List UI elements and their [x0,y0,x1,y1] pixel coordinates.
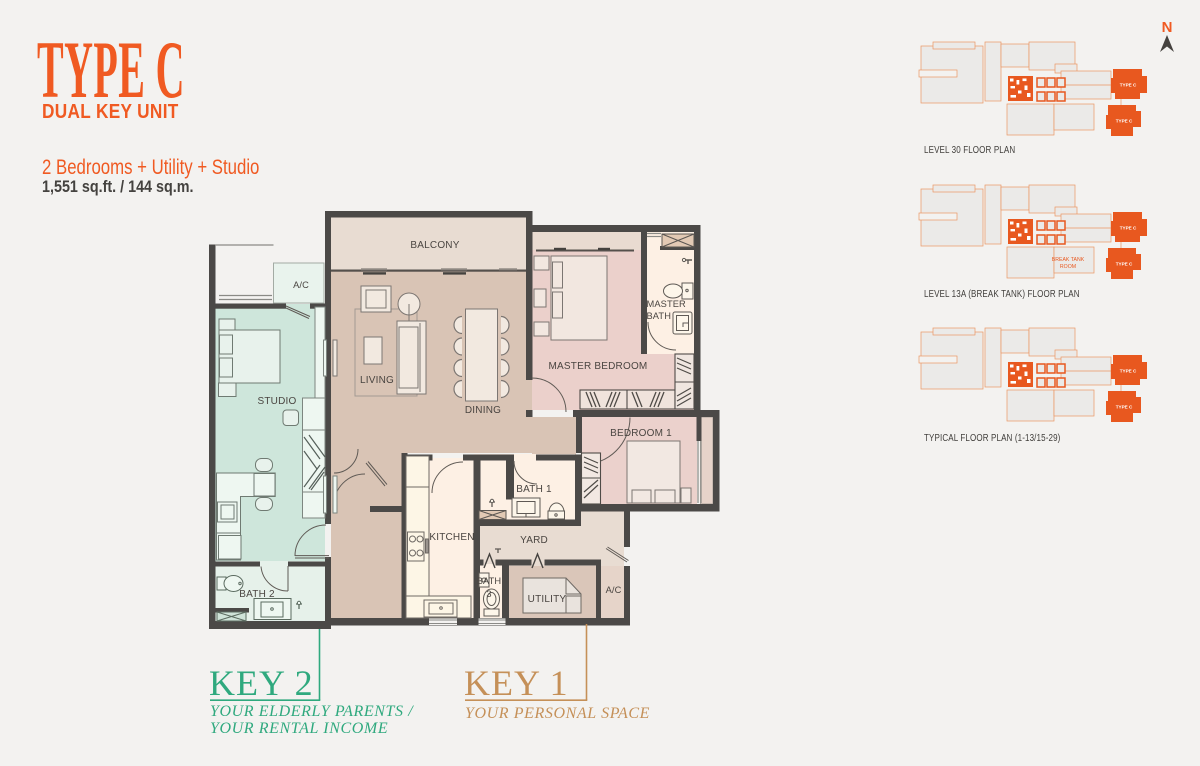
svg-text:MASTER BEDROOM: MASTER BEDROOM [549,361,648,372]
svg-text:BATH 2: BATH 2 [239,589,275,600]
svg-text:2 Bedrooms + Utility + Studio: 2 Bedrooms + Utility + Studio [42,156,259,179]
svg-text:BATH: BATH [647,311,672,321]
svg-text:A/C: A/C [293,280,309,290]
svg-text:YOUR ELDERLY PARENTS /: YOUR ELDERLY PARENTS / [210,703,414,720]
svg-text:MASTER: MASTER [647,299,687,309]
svg-text:LEVEL 13A (BREAK TANK) FLOOR P: LEVEL 13A (BREAK TANK) FLOOR PLAN [924,288,1080,299]
svg-text:A/C: A/C [606,585,622,595]
svg-text:LIVING: LIVING [360,375,394,386]
svg-text:N: N [1162,19,1173,36]
svg-text:DUAL KEY UNIT: DUAL KEY UNIT [42,101,179,124]
svg-text:YOUR RENTAL INCOME: YOUR RENTAL INCOME [210,720,388,737]
svg-text:KEY 1: KEY 1 [464,663,569,703]
svg-text:YOUR PERSONAL SPACE: YOUR PERSONAL SPACE [465,705,650,722]
svg-text:KITCHEN: KITCHEN [429,532,474,543]
svg-text:UTILITY: UTILITY [528,594,567,605]
svg-text:BALCONY: BALCONY [410,240,459,251]
svg-text:TYPICAL FLOOR PLAN (1-13/15-29: TYPICAL FLOOR PLAN (1-13/15-29) [924,432,1060,443]
svg-text:1,551 sq.ft. / 144 sq.m.: 1,551 sq.ft. / 144 sq.m. [42,178,193,196]
svg-text:BREAK TANK: BREAK TANK [1052,257,1085,263]
svg-text:BEDROOM 1: BEDROOM 1 [610,428,672,439]
svg-text:3: 3 [486,589,491,599]
svg-text:DINING: DINING [465,405,501,416]
svg-text:BATH: BATH [477,576,502,586]
svg-text:LEVEL 30 FLOOR PLAN: LEVEL 30 FLOOR PLAN [924,144,1015,155]
svg-text:YARD: YARD [520,535,548,546]
svg-text:KEY 2: KEY 2 [209,663,314,703]
svg-text:STUDIO: STUDIO [258,396,297,407]
svg-text:ROOM: ROOM [1060,264,1076,270]
svg-text:BATH 1: BATH 1 [516,484,552,495]
